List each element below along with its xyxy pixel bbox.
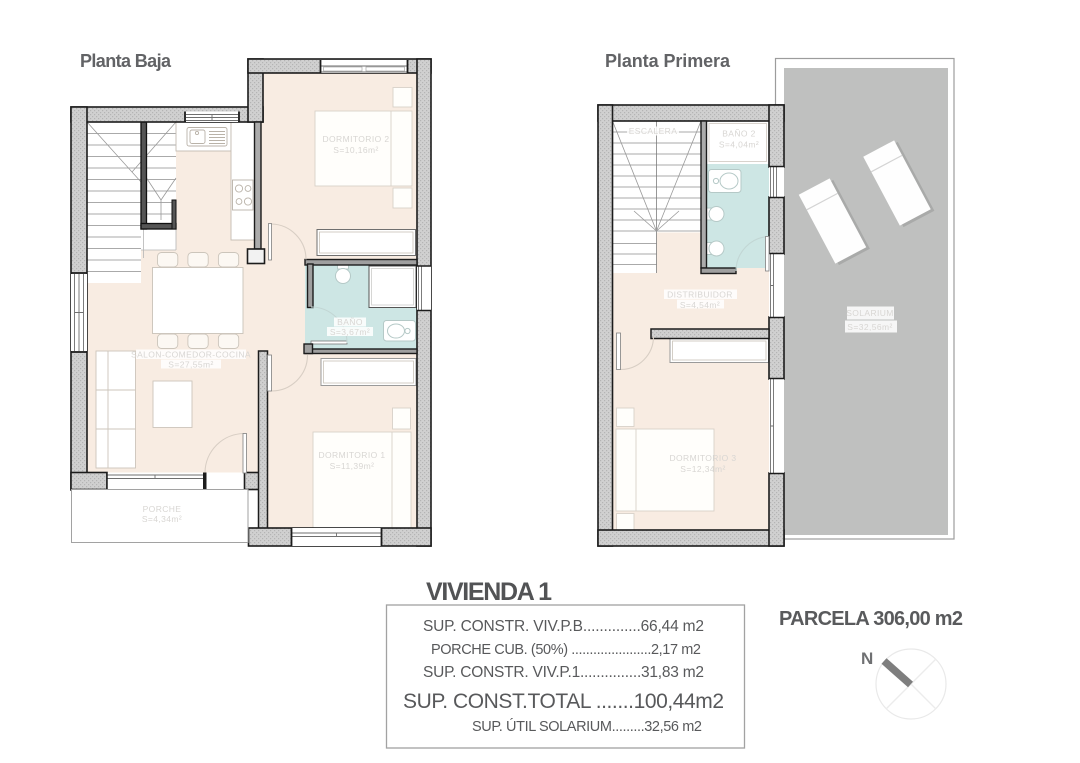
svg-text:DORMITORIO 1: DORMITORIO 1 bbox=[319, 450, 386, 460]
svg-text:SOLARIUM: SOLARIUM bbox=[846, 308, 894, 318]
svg-text:Planta Primera: Planta Primera bbox=[605, 51, 731, 71]
svg-text:DORMITORIO 2: DORMITORIO 2 bbox=[323, 134, 390, 144]
svg-text:ESCALERA: ESCALERA bbox=[629, 126, 678, 136]
svg-text:BAÑO 2: BAÑO 2 bbox=[722, 129, 756, 139]
svg-text:S=4,54m²: S=4,54m² bbox=[680, 300, 720, 310]
svg-text:S=3,67m²: S=3,67m² bbox=[330, 327, 370, 337]
svg-text:DORMITORIO 3: DORMITORIO 3 bbox=[670, 453, 737, 463]
svg-text:Planta Baja: Planta Baja bbox=[80, 51, 172, 71]
svg-text:S=27,55m²: S=27,55m² bbox=[168, 360, 213, 370]
svg-text:SUP. CONSTR. VIV.P.B..........: SUP. CONSTR. VIV.P.B..............66,44 … bbox=[423, 618, 704, 635]
svg-text:S=4,34m²: S=4,34m² bbox=[142, 514, 182, 524]
svg-text:VIVIENDA 1: VIVIENDA 1 bbox=[426, 578, 552, 606]
svg-text:SALON-COMEDOR-COCINA: SALON-COMEDOR-COCINA bbox=[131, 350, 251, 360]
svg-text:SUP. CONSTR. VIV.P.1..........: SUP. CONSTR. VIV.P.1...............31,83… bbox=[423, 664, 704, 681]
svg-text:PORCHE: PORCHE bbox=[143, 504, 182, 514]
svg-text:PARCELA 306,00 m2: PARCELA 306,00 m2 bbox=[779, 608, 963, 630]
svg-text:S=11,39m²: S=11,39m² bbox=[330, 461, 375, 471]
svg-text:S=32,56m²: S=32,56m² bbox=[847, 322, 892, 332]
svg-text:S=12,34m²: S=12,34m² bbox=[680, 464, 725, 474]
svg-text:S=4,04m²: S=4,04m² bbox=[719, 140, 759, 150]
svg-text:BAÑO: BAÑO bbox=[337, 317, 363, 327]
svg-text:SUP. ÚTIL SOLARIUM.........32,: SUP. ÚTIL SOLARIUM.........32,56 m2 bbox=[472, 718, 702, 735]
svg-text:DISTRIBUIDOR: DISTRIBUIDOR bbox=[667, 290, 733, 300]
svg-text:S=10,16m²: S=10,16m² bbox=[333, 145, 378, 155]
svg-text:PORCHE CUB. (50%) ............: PORCHE CUB. (50%) ......................… bbox=[431, 642, 701, 658]
svg-text:SUP. CONST.TOTAL .......100,44: SUP. CONST.TOTAL .......100,44m2 bbox=[403, 690, 724, 713]
svg-text:N: N bbox=[861, 649, 873, 668]
